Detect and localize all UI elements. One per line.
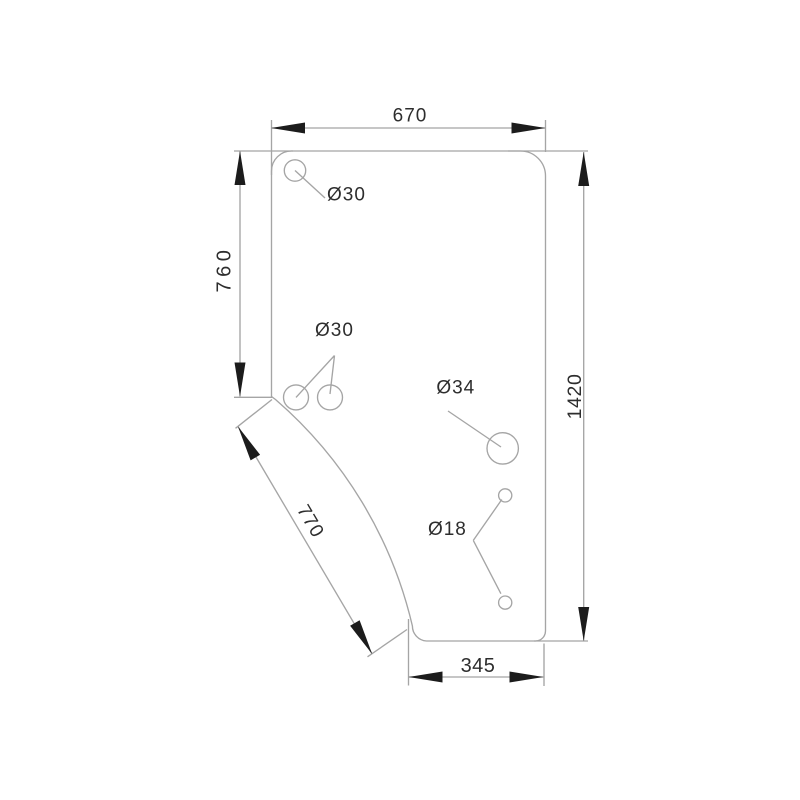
svg-text:Ø30: Ø30: [327, 185, 366, 206]
svg-text:Ø34: Ø34: [436, 378, 475, 399]
svg-text:670: 670: [393, 106, 428, 127]
svg-text:770: 770: [292, 501, 328, 542]
svg-text:Ø18: Ø18: [428, 519, 467, 540]
svg-text:345: 345: [461, 655, 496, 677]
svg-text:1420: 1420: [564, 374, 586, 420]
svg-text:760: 760: [214, 246, 236, 293]
svg-text:Ø30: Ø30: [315, 320, 354, 341]
